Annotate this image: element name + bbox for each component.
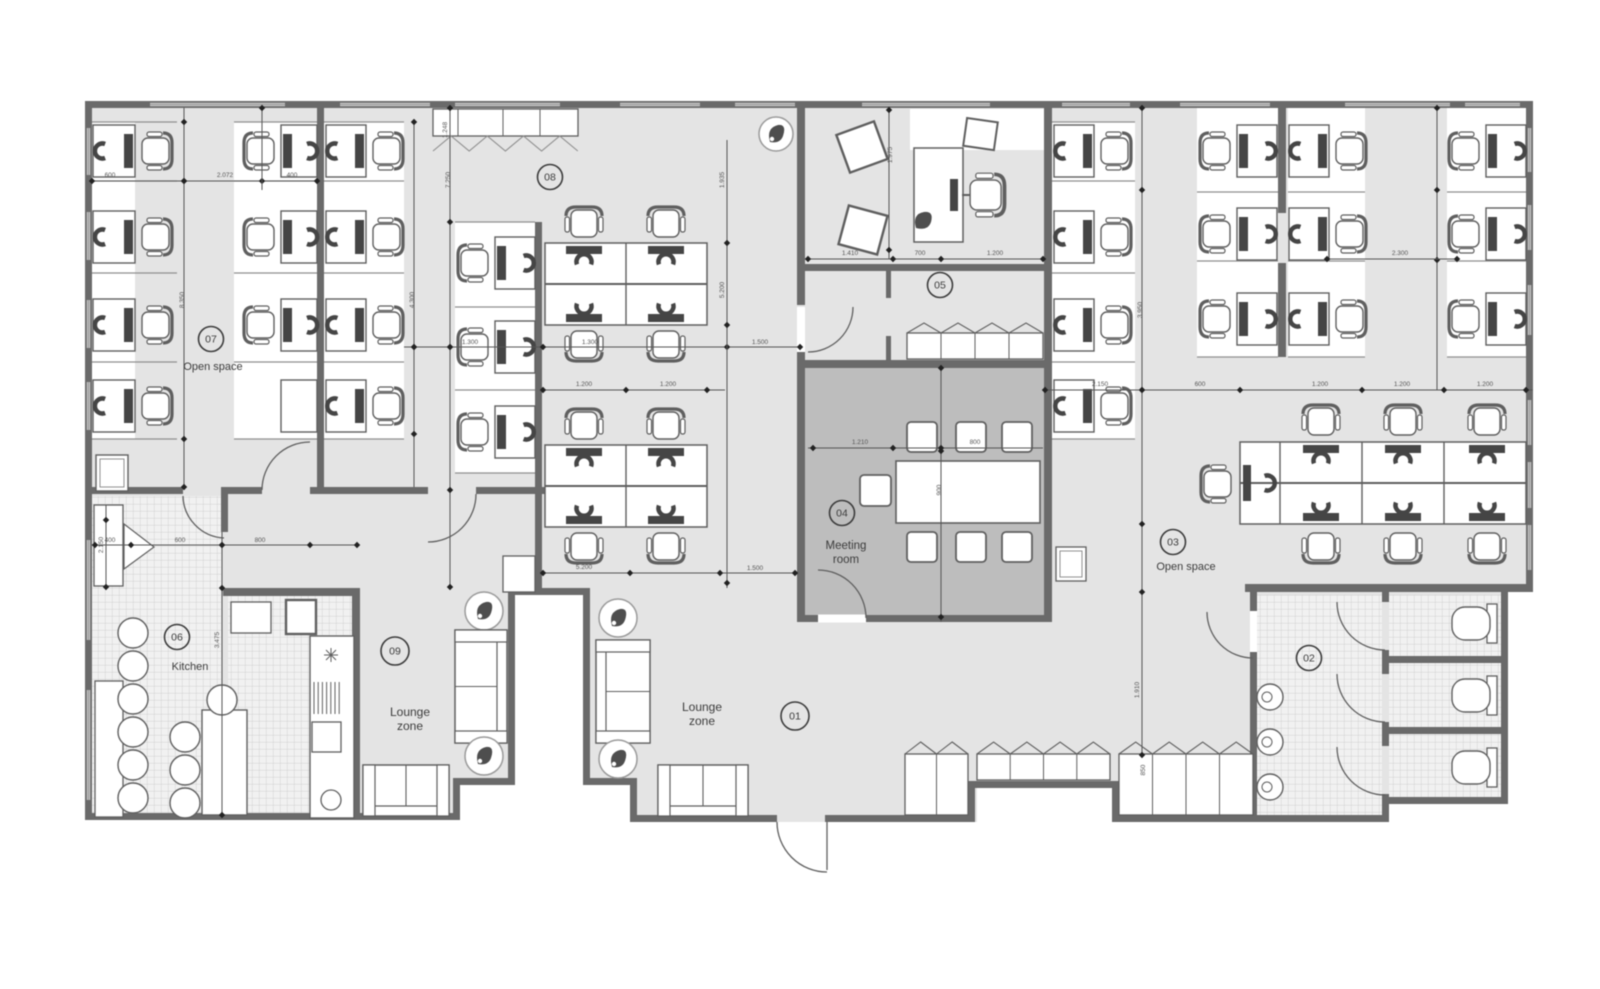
svg-text:400: 400 <box>105 537 116 544</box>
svg-text:08: 08 <box>544 172 556 184</box>
svg-text:2.072: 2.072 <box>217 172 234 179</box>
svg-text:2.150: 2.150 <box>1092 381 1109 388</box>
svg-text:01: 01 <box>789 711 801 723</box>
svg-text:900: 900 <box>936 484 943 495</box>
svg-text:Meeting: Meeting <box>826 540 867 552</box>
svg-text:Open space: Open space <box>1156 561 1215 573</box>
svg-text:3.950: 3.950 <box>1137 301 1144 318</box>
svg-text:04: 04 <box>836 508 848 520</box>
svg-text:1.200: 1.200 <box>1312 381 1329 388</box>
svg-text:Kitchen: Kitchen <box>172 661 209 673</box>
svg-text:8.350: 8.350 <box>179 291 186 308</box>
svg-text:1.210: 1.210 <box>852 439 869 446</box>
svg-text:03: 03 <box>1167 537 1179 549</box>
svg-text:room: room <box>833 554 859 566</box>
svg-text:1.200: 1.200 <box>1477 381 1494 388</box>
svg-text:Lounge: Lounge <box>682 700 722 714</box>
svg-text:400: 400 <box>287 172 298 179</box>
svg-text:800: 800 <box>255 537 266 544</box>
svg-text:1.248: 1.248 <box>442 121 449 138</box>
svg-text:zone: zone <box>689 714 715 728</box>
svg-text:Lounge: Lounge <box>390 705 430 719</box>
svg-text:06: 06 <box>171 632 183 644</box>
svg-text:zone: zone <box>397 719 423 733</box>
svg-text:7.250: 7.250 <box>445 171 452 188</box>
svg-text:05: 05 <box>934 280 946 292</box>
svg-text:3.475: 3.475 <box>214 631 221 648</box>
svg-text:800: 800 <box>970 439 981 446</box>
svg-text:4.300: 4.300 <box>409 291 416 308</box>
svg-text:09: 09 <box>389 646 401 658</box>
svg-text:1.975: 1.975 <box>887 146 894 163</box>
svg-text:1.500: 1.500 <box>752 339 769 346</box>
svg-text:1.500: 1.500 <box>747 565 764 572</box>
svg-text:1.910: 1.910 <box>1134 681 1141 698</box>
svg-text:Open space: Open space <box>183 361 242 373</box>
svg-text:1.410: 1.410 <box>842 250 859 257</box>
svg-text:1.200: 1.200 <box>1394 381 1411 388</box>
svg-text:5.200: 5.200 <box>576 564 593 571</box>
svg-text:1.300: 1.300 <box>582 339 599 346</box>
svg-text:5.200: 5.200 <box>719 281 726 298</box>
svg-text:600: 600 <box>105 172 116 179</box>
svg-text:600: 600 <box>175 537 186 544</box>
svg-text:850: 850 <box>1140 764 1147 775</box>
svg-text:1.300: 1.300 <box>462 339 479 346</box>
svg-text:02: 02 <box>1303 653 1315 665</box>
svg-text:1.200: 1.200 <box>987 250 1004 257</box>
svg-text:2.300: 2.300 <box>1392 250 1409 257</box>
svg-text:1.200: 1.200 <box>576 381 593 388</box>
svg-text:07: 07 <box>205 334 217 346</box>
svg-text:600: 600 <box>1195 381 1206 388</box>
svg-text:1.200: 1.200 <box>660 381 677 388</box>
svg-text:700: 700 <box>915 250 926 257</box>
svg-text:1.935: 1.935 <box>719 171 726 188</box>
